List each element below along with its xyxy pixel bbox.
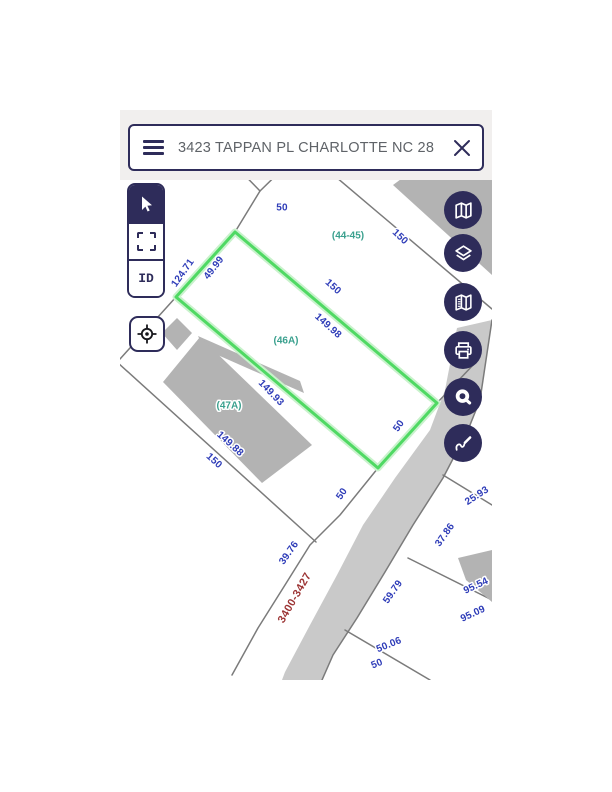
dimension-label: 39.76 <box>277 539 301 567</box>
parcel-id-label: (46A) <box>273 336 298 347</box>
tape-measure-icon <box>453 387 474 408</box>
dimension-label: 150 <box>390 227 410 247</box>
basemap-icon <box>453 292 474 313</box>
search-input[interactable]: 3423 TAPPAN PL CHARLOTTE NC 28 <box>178 140 447 156</box>
dimension-label: 150 <box>204 451 224 471</box>
map-icon <box>453 200 474 221</box>
map-button[interactable] <box>444 191 482 229</box>
map-canvas[interactable]: 50150124.7149.99150149.98149.93149.88150… <box>120 180 492 680</box>
layers-button[interactable] <box>444 234 482 272</box>
dimension-label: 50 <box>276 203 288 214</box>
dimension-label: 150 <box>323 277 343 297</box>
building-bottom-right <box>458 550 492 602</box>
cursor-arrow-icon <box>136 194 156 214</box>
left-toolbar: ID <box>127 183 165 298</box>
parcel-id-label: (47A) <box>216 401 241 412</box>
locate-tool-button[interactable] <box>129 316 165 352</box>
measure-button[interactable] <box>444 378 482 416</box>
printer-icon <box>453 340 474 361</box>
road-shape <box>282 320 492 680</box>
dimension-label: 95.09 <box>459 604 487 625</box>
map-header: 3423 TAPPAN PL CHARLOTTE NC 28 <box>120 110 492 180</box>
sketch-pencil-icon <box>453 433 474 454</box>
parcel-map[interactable]: 50150124.7149.99150149.98149.93149.88150… <box>120 180 492 680</box>
clear-search-icon[interactable] <box>451 137 473 159</box>
basemap-button[interactable] <box>444 283 482 321</box>
parcel-map-app: 50150124.7149.99150149.98149.93149.88150… <box>120 110 492 680</box>
parcel-id-label: (44-45) <box>332 231 364 242</box>
marquee-icon <box>137 232 156 251</box>
dimension-label: 50 <box>370 657 385 672</box>
marquee-select-tool-button[interactable] <box>129 222 163 259</box>
menu-icon[interactable] <box>143 140 164 155</box>
building-diamond <box>162 318 192 350</box>
dimension-label: 25.93 <box>463 484 491 508</box>
pointer-tool-button[interactable] <box>129 185 163 222</box>
dimension-label: 50 <box>334 486 350 502</box>
dimension-label: 37.86 <box>433 521 457 549</box>
page: 50150124.7149.99150149.98149.93149.88150… <box>0 0 612 792</box>
sketch-button[interactable] <box>444 424 482 462</box>
print-button[interactable] <box>444 331 482 369</box>
id-label: ID <box>138 271 154 286</box>
target-icon <box>135 322 159 346</box>
search-bar: 3423 TAPPAN PL CHARLOTTE NC 28 <box>128 124 484 171</box>
dimension-label: 59.79 <box>381 578 405 606</box>
dimension-label: 50 <box>391 418 407 434</box>
street-range-label: 3400-3427 <box>276 571 315 626</box>
layers-icon <box>453 243 474 264</box>
identify-tool-button[interactable]: ID <box>129 259 163 296</box>
dimension-label: 50.06 <box>375 635 403 655</box>
